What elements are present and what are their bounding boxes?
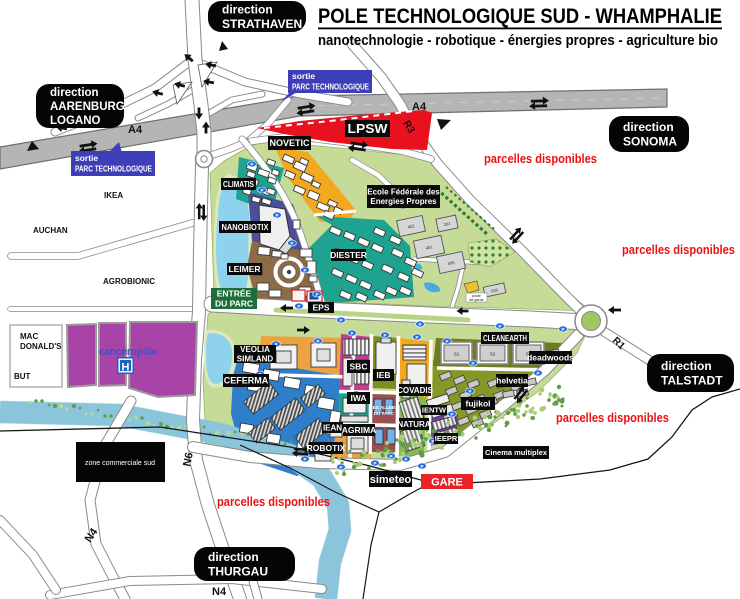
svg-text:fujikol: fujikol	[465, 399, 490, 409]
svg-text:P: P	[561, 327, 564, 332]
svg-text:ROBOTIX: ROBOTIX	[307, 443, 346, 453]
svg-text:parcelles disponibles: parcelles disponibles	[217, 495, 330, 509]
svg-text:BUT: BUT	[14, 372, 31, 381]
svg-text:helvetia: helvetia	[496, 376, 528, 386]
svg-text:P: P	[303, 268, 306, 273]
svg-text:IEB: IEB	[376, 370, 390, 380]
svg-text:P: P	[290, 241, 293, 246]
svg-text:P: P	[536, 371, 539, 376]
svg-text:A4: A4	[412, 101, 427, 113]
svg-text:DU PARC: DU PARC	[374, 411, 395, 416]
svg-text:P: P	[373, 461, 376, 466]
svg-text:direction: direction	[623, 120, 674, 134]
svg-text:AGROBIONIC: AGROBIONIC	[103, 277, 155, 286]
svg-text:NATURA: NATURA	[397, 420, 430, 429]
svg-text:direction: direction	[222, 3, 273, 17]
svg-text:parcelles disponibles: parcelles disponibles	[556, 411, 669, 425]
svg-text:P: P	[250, 162, 253, 167]
svg-text:P: P	[468, 389, 471, 394]
svg-text:P: P	[471, 361, 474, 366]
svg-text:LOGANO: LOGANO	[50, 115, 101, 127]
svg-text:IKEA: IKEA	[104, 191, 123, 200]
svg-text:LES ALLEES: LES ALLEES	[370, 405, 398, 410]
svg-text:EPS: EPS	[312, 303, 329, 313]
svg-text:N4: N4	[212, 586, 227, 598]
svg-text:P: P	[316, 339, 319, 344]
svg-text:SBC: SBC	[350, 362, 368, 372]
svg-text:IEAN: IEAN	[323, 423, 342, 432]
svg-text:ENTRÉE: ENTRÉE	[217, 289, 252, 299]
svg-text:CLEANEARTH: CLEANEARTH	[483, 334, 527, 343]
svg-text:LEIMER: LEIMER	[228, 264, 260, 274]
svg-text:P: P	[260, 188, 263, 193]
svg-text:sortie: sortie	[75, 153, 98, 163]
svg-text:parcelles disponibles: parcelles disponibles	[484, 152, 597, 166]
svg-text:direction: direction	[50, 87, 99, 99]
svg-text:P: P	[315, 292, 318, 297]
svg-text:THURGAU: THURGAU	[208, 565, 268, 579]
svg-text:AGRIMA: AGRIMA	[342, 425, 376, 435]
svg-text:DIESTER: DIESTER	[330, 250, 367, 260]
svg-text:A4: A4	[128, 124, 143, 136]
svg-text:Cinema multiplex: Cinema multiplex	[485, 448, 548, 457]
svg-text:sortie: sortie	[292, 71, 315, 81]
svg-text:MAC: MAC	[20, 332, 38, 341]
svg-text:IWA: IWA	[350, 393, 366, 403]
svg-text:simeteo: simeteo	[370, 474, 412, 486]
svg-text:H: H	[122, 362, 130, 374]
svg-text:Energies Propres: Energies Propres	[370, 197, 437, 206]
svg-text:COVADIS: COVADIS	[397, 386, 434, 395]
svg-text:NOVETIC: NOVETIC	[269, 138, 310, 148]
svg-text:P: P	[498, 324, 501, 329]
svg-text:GARE: GARE	[431, 477, 463, 489]
svg-text:DU PARC: DU PARC	[215, 299, 253, 309]
svg-text:CLIMATIS: CLIMATIS	[223, 179, 254, 189]
svg-text:Ecole Fédérale des: Ecole Fédérale des	[367, 188, 440, 197]
svg-text:TALSTADT: TALSTADT	[661, 374, 723, 388]
svg-text:POLE TECHNOLOGIQUE SUD - WHAMP: POLE TECHNOLOGIQUE SUD - WHAMPHALIE	[318, 5, 722, 28]
svg-text:S1: S1	[454, 352, 460, 357]
svg-text:DONALD'S: DONALD'S	[20, 342, 62, 351]
svg-text:P: P	[418, 322, 421, 327]
svg-text:P: P	[415, 335, 418, 340]
svg-text:PARC TECHNOLOGIQUE: PARC TECHNOLOGIQUE	[75, 165, 153, 174]
svg-text:S2: S2	[490, 352, 496, 357]
svg-text:LPSW: LPSW	[348, 121, 389, 136]
svg-text:SONOMA: SONOMA	[623, 135, 677, 149]
svg-text:direction: direction	[208, 550, 259, 564]
svg-text:SIMLAND: SIMLAND	[237, 355, 274, 364]
svg-text:P: P	[350, 331, 353, 336]
svg-text:P: P	[297, 304, 300, 309]
svg-text:VEOLIA: VEOLIA	[240, 345, 270, 354]
svg-text:P: P	[275, 213, 278, 218]
svg-text:AARENBURG: AARENBURG	[50, 101, 125, 113]
svg-text:P: P	[303, 457, 306, 462]
svg-text:P: P	[404, 457, 407, 462]
svg-text:P: P	[339, 318, 342, 323]
svg-text:parcelles disponibles: parcelles disponibles	[622, 243, 735, 257]
svg-text:zone commerciale sud: zone commerciale sud	[85, 460, 155, 467]
svg-text:P: P	[383, 333, 386, 338]
svg-text:deadwoods: deadwoods	[527, 353, 574, 363]
svg-text:P: P	[420, 464, 423, 469]
svg-text:direction: direction	[661, 359, 712, 373]
svg-text:nanotechnologie - robotique -: nanotechnologie - robotique - énergies p…	[318, 33, 718, 49]
svg-text:P: P	[445, 339, 448, 344]
svg-text:NANOBIOTIX: NANOBIOTIX	[222, 222, 269, 232]
svg-text:IEEPR: IEEPR	[435, 434, 458, 443]
svg-text:STRATHAVEN: STRATHAVEN	[222, 17, 302, 31]
svg-text:PARC TECHNOLOGIQUE: PARC TECHNOLOGIQUE	[292, 83, 370, 92]
svg-text:P: P	[389, 454, 392, 459]
svg-text:cancéropôle: cancéropôle	[99, 346, 157, 358]
svg-text:IENTW: IENTW	[422, 406, 447, 415]
svg-text:P: P	[450, 412, 453, 417]
svg-text:P: P	[339, 465, 342, 470]
svg-text:AUCHAN: AUCHAN	[33, 226, 68, 235]
svg-text:CEFERMA: CEFERMA	[224, 376, 269, 386]
svg-text:de garde: de garde	[469, 298, 483, 302]
